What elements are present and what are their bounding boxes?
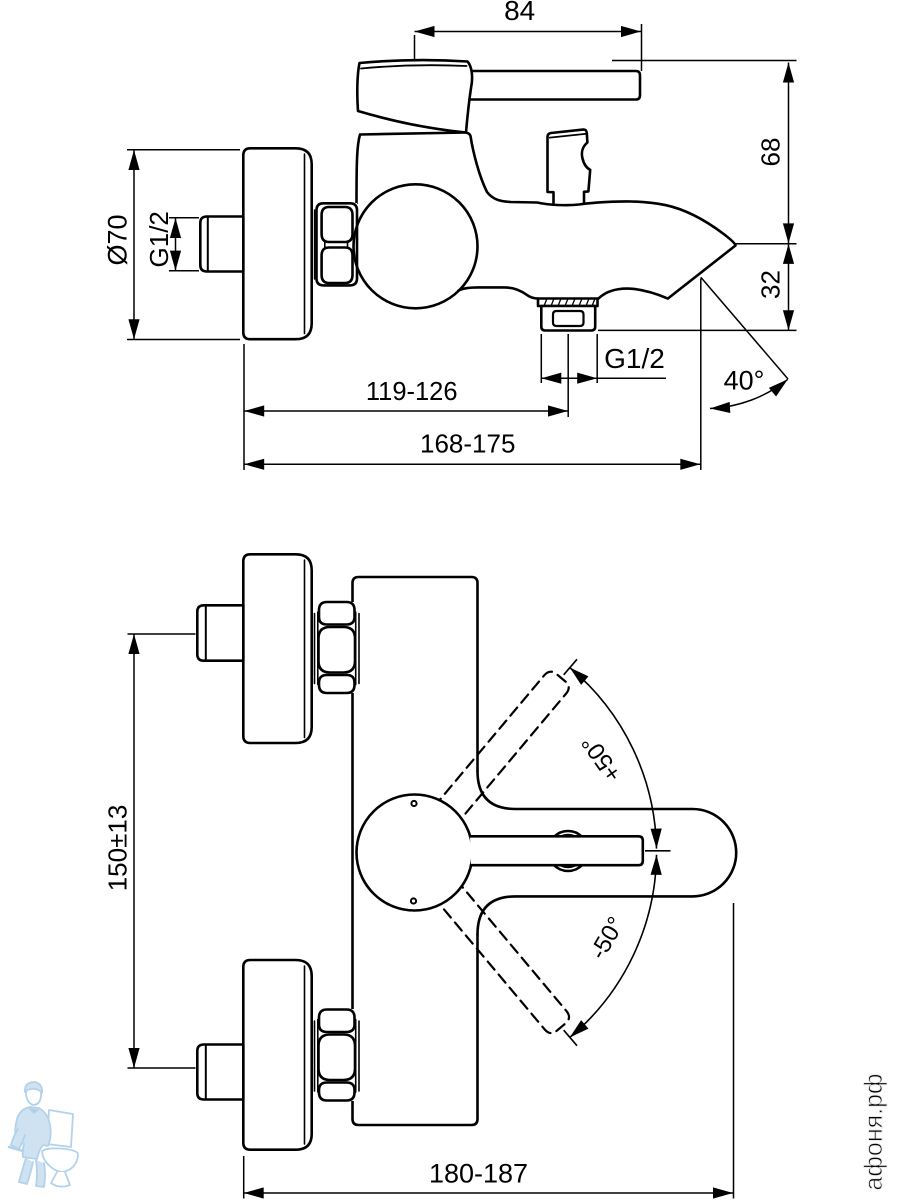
svg-text:40°: 40° [724, 366, 765, 396]
svg-text:68: 68 [756, 138, 786, 167]
svg-text:150±13: 150±13 [103, 805, 133, 892]
svg-text:афоня.рф: афоня.рф [860, 1073, 888, 1190]
svg-text:Ø70: Ø70 [103, 214, 133, 265]
svg-text:180-187: 180-187 [429, 1159, 528, 1189]
svg-text:32: 32 [756, 270, 786, 299]
svg-text:84: 84 [504, 0, 535, 26]
svg-text:168-175: 168-175 [420, 429, 515, 459]
svg-text:G1/2: G1/2 [144, 211, 174, 267]
svg-text:119-126: 119-126 [366, 378, 458, 406]
svg-text:G1/2: G1/2 [604, 343, 665, 374]
